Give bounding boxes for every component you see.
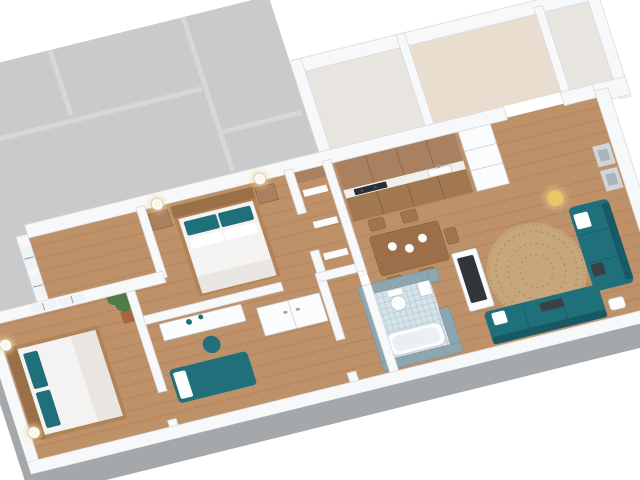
floor-plan-canvas bbox=[0, 0, 640, 480]
floor-plan-render bbox=[0, 0, 640, 480]
